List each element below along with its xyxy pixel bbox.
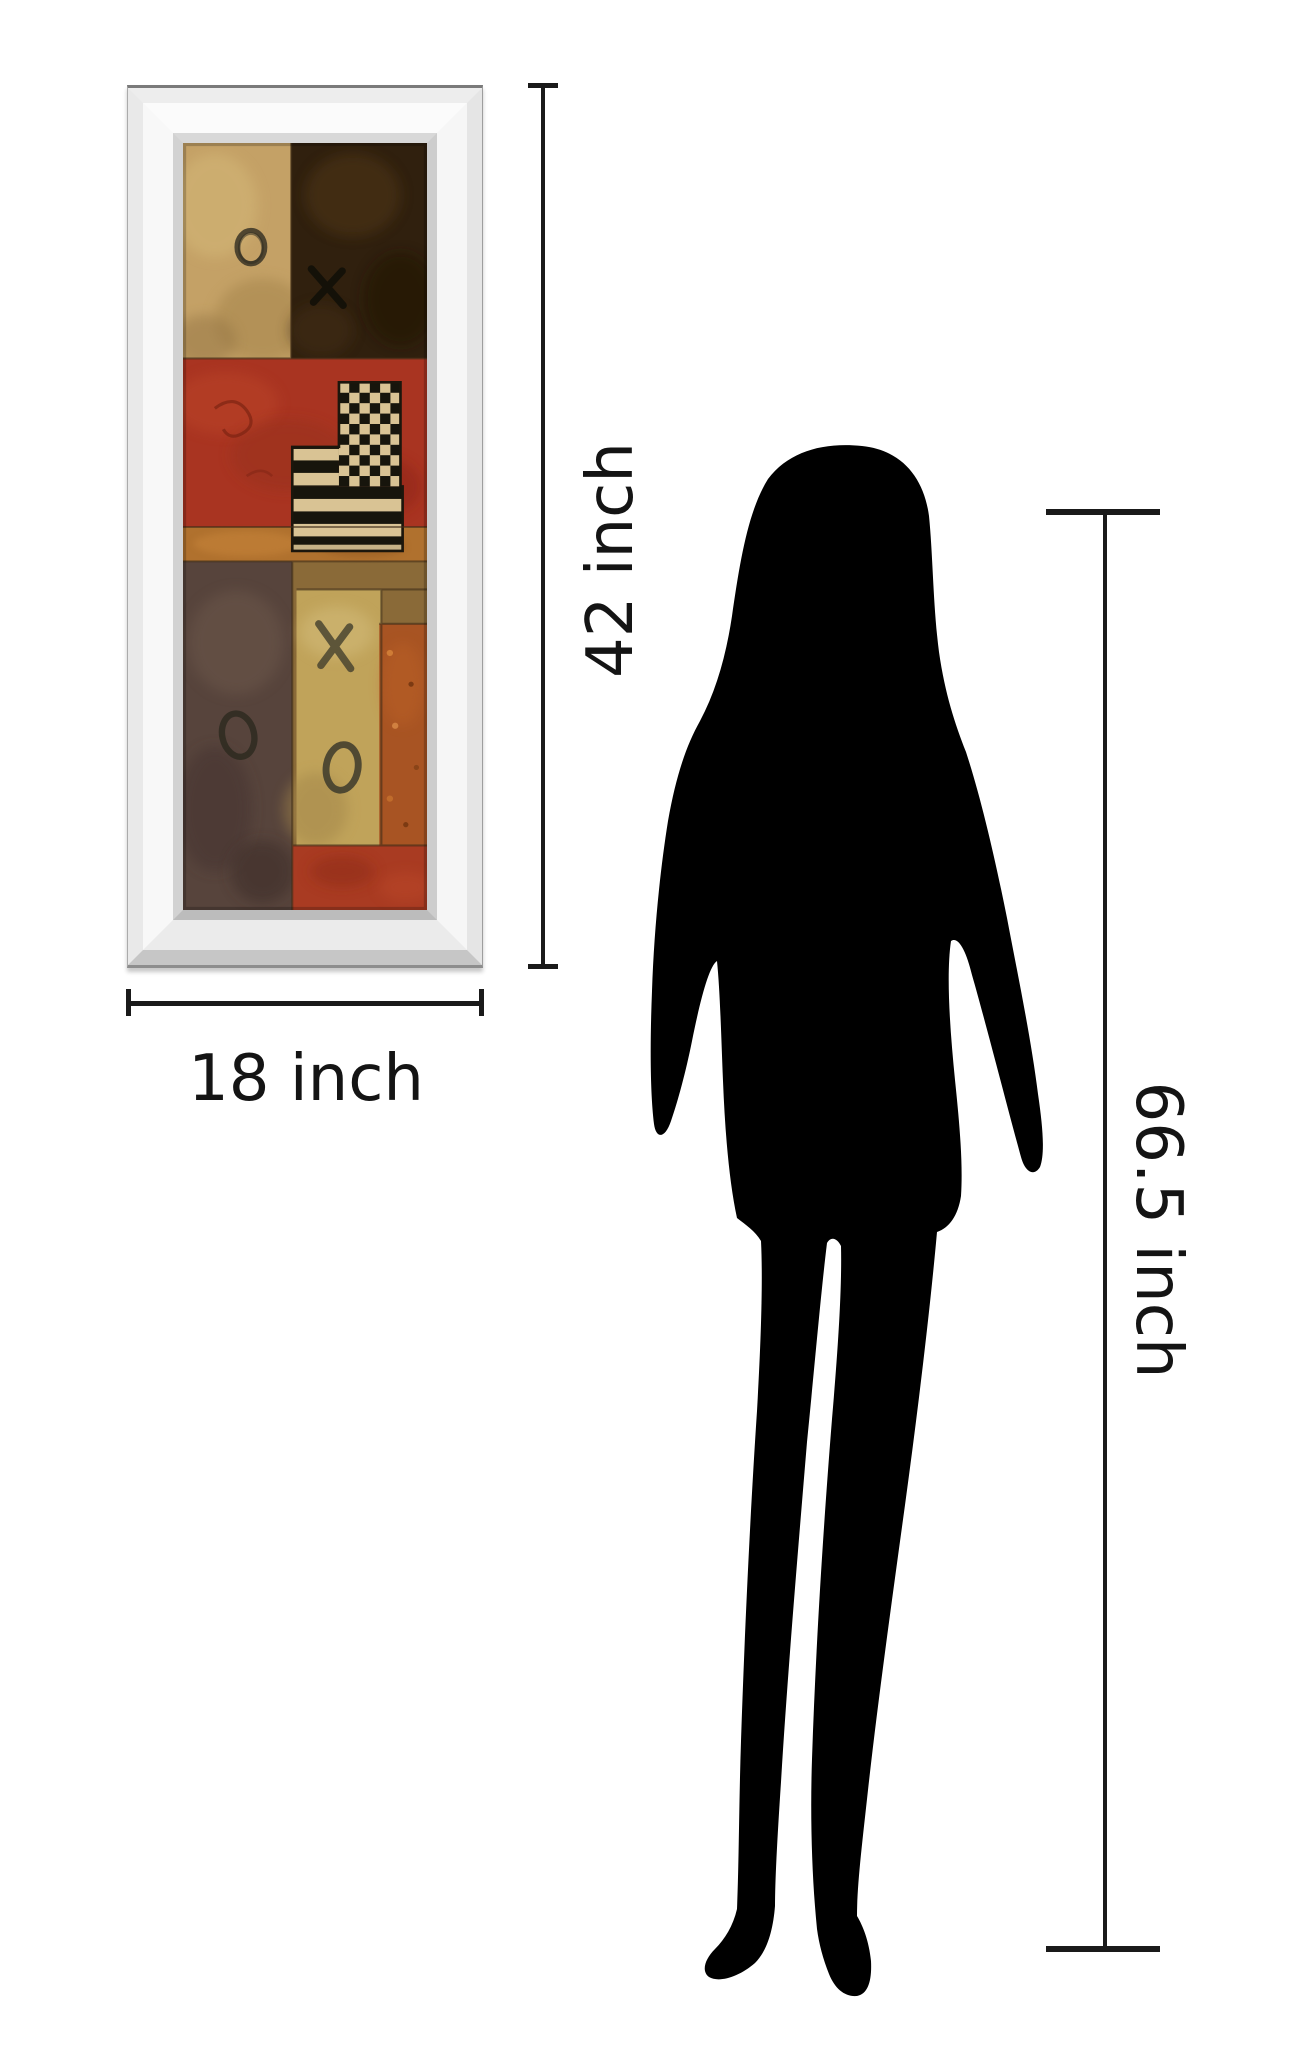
artwork-panel-browngray: [183, 561, 294, 910]
frame-width-left-tick: [126, 989, 131, 1016]
artwork-image: [183, 143, 427, 910]
artwork-panel-redstrip: [292, 845, 427, 910]
frame-width-line: [128, 1001, 482, 1006]
frame-height-line: [541, 85, 545, 968]
frame-width-label: 18 inch: [188, 1042, 424, 1116]
person-height-bottom-tick: [1046, 1946, 1160, 1952]
artwork-panel-darkbrown: [289, 143, 427, 358]
artwork-panel-yellow: [284, 589, 382, 845]
person-silhouette-svg: [620, 430, 1060, 2010]
person-silhouette-path: [651, 445, 1043, 1996]
mirror-frame: [127, 85, 483, 968]
frame-width-right-tick: [479, 989, 484, 1016]
person-height-label: 66.5 inch: [1121, 1082, 1195, 1379]
frame-height-bottom-tick: [528, 964, 558, 969]
artwork-svg: [183, 143, 427, 910]
frame-height-top-tick: [528, 83, 558, 88]
person-height-top-tick: [1046, 509, 1160, 515]
artwork-panel-orange: [379, 624, 427, 846]
person-height-line: [1103, 512, 1107, 1950]
person-silhouette: [620, 430, 1060, 2010]
size-comparison-illustration: 42 inch 18 inch 66.5 inch: [0, 0, 1296, 2048]
